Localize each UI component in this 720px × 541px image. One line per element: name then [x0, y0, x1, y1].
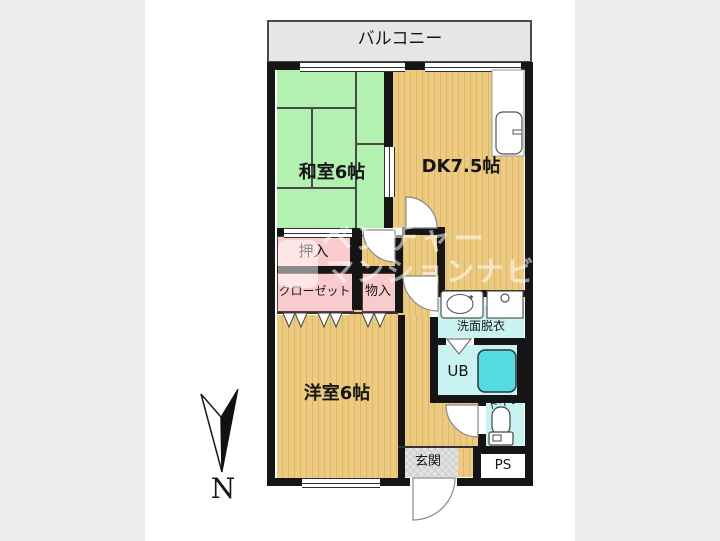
tatami-line	[355, 69, 357, 228]
door-opening-dk-hall	[362, 228, 402, 235]
wall-hall-right	[437, 227, 445, 292]
oshiire-label: 押入	[277, 243, 350, 260]
washroom-label: 洗面脱衣	[438, 320, 524, 333]
window-western-room	[302, 478, 380, 488]
wall-left	[267, 62, 275, 486]
japanese-room-label: 和室6帖	[276, 163, 388, 183]
wall-ps-left	[473, 454, 481, 478]
closet-bifold-line	[277, 312, 398, 314]
entrance-step	[458, 448, 473, 477]
fusuma-oshiire	[284, 228, 352, 238]
wall-western-right	[398, 315, 405, 478]
door-opening-entrance	[410, 478, 457, 486]
wall-closet-row-top	[277, 266, 403, 273]
door-opening-washroom	[430, 299, 438, 317]
western-room-label: 洋室6帖	[276, 384, 398, 404]
japanese-room	[277, 69, 384, 228]
storage-label: 物入	[361, 285, 395, 299]
door-opening-ub	[446, 338, 474, 345]
wall-washitsu-dk-upper	[384, 69, 393, 147]
closet-label: クローゼット	[277, 285, 352, 298]
entrance-label: 玄関	[398, 455, 458, 469]
wall-toilet-ps	[473, 446, 533, 454]
pipe-space-label: PS	[481, 458, 525, 473]
wall-dk-washroom	[430, 290, 533, 297]
compass-north-label: N	[204, 474, 242, 505]
tatami-line	[277, 107, 355, 109]
tatami-line	[355, 143, 384, 145]
hallway-toilet-access	[437, 403, 478, 448]
unit-bath-label: UB	[437, 363, 479, 380]
window-balcony-dk	[425, 62, 521, 72]
window-balcony-washitsu	[300, 62, 405, 72]
wall-right	[525, 62, 533, 486]
floor-plan: バルコニー 和室6帖 DK7.5帖 押入 クローゼット 物入 洋室6帖 洗面脱衣…	[0, 0, 720, 541]
balcony-label: バルコニー	[280, 30, 520, 49]
dining-kitchen-label: DK7.5帖	[398, 157, 524, 177]
wall-washitsu-dk-lower	[384, 197, 393, 228]
wall-storage-right	[395, 228, 403, 313]
tatami-line	[277, 187, 355, 189]
wall-washroom-ub	[430, 338, 525, 345]
entrance-top-line	[398, 446, 473, 448]
